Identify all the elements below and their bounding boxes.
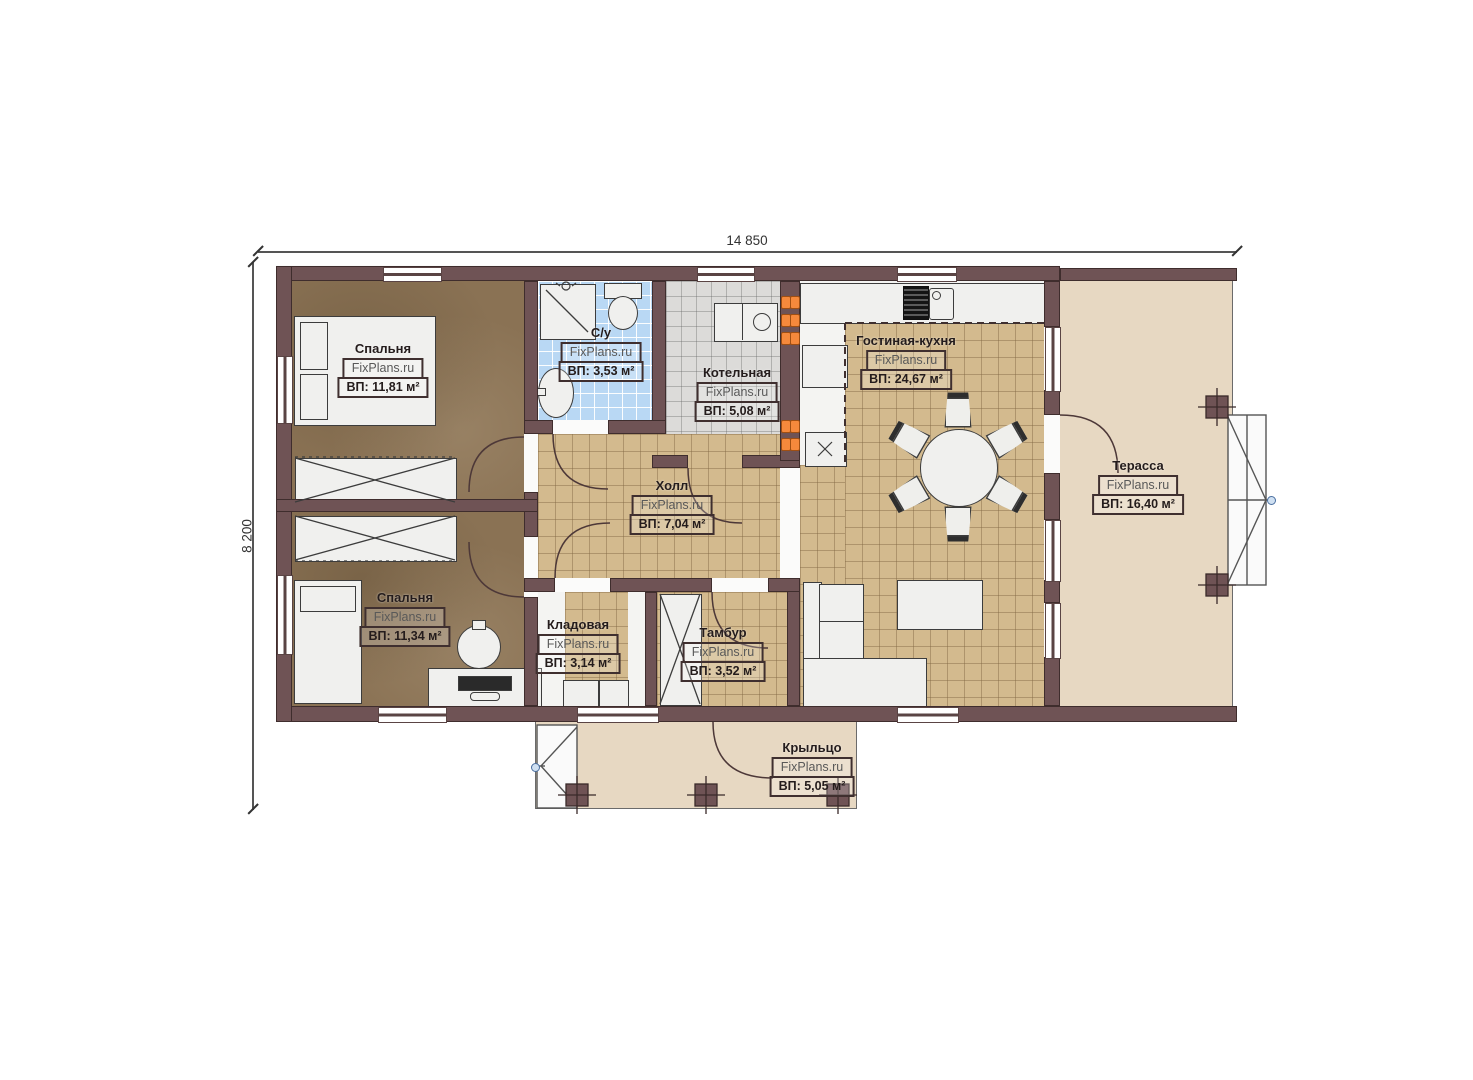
watermark: FixPlans.ru (538, 634, 619, 655)
window (378, 707, 447, 723)
reference-dot (531, 763, 540, 772)
wall-segment (1060, 268, 1237, 281)
window (1045, 520, 1061, 582)
room-area: ВП: 11,34 м² (359, 626, 450, 647)
desk-keyboard (470, 692, 500, 701)
window (277, 356, 293, 424)
dining-table (920, 429, 998, 507)
window (897, 707, 959, 723)
watermark: FixPlans.ru (632, 495, 713, 516)
wall-segment (524, 420, 553, 434)
room-name: Спальня (377, 590, 433, 605)
room-name: Тамбур (699, 625, 746, 640)
window (1045, 327, 1061, 392)
outlet-symbol (790, 314, 800, 327)
dimension-height-label: 8 200 (240, 519, 255, 553)
room-label-terrace: Терасса FixPlans.ru ВП: 16,40 м² (1092, 458, 1184, 515)
fridge (903, 286, 929, 320)
outlet-symbol (790, 438, 800, 451)
room-area: ВП: 3,52 м² (681, 661, 766, 682)
dining-chair (945, 507, 972, 542)
wall-segment (610, 578, 712, 592)
room-name: Терасса (1112, 458, 1164, 473)
room-area: ВП: 7,04 м² (630, 514, 715, 535)
window (897, 267, 957, 282)
dishwasher-cabinet (805, 432, 847, 467)
room-label-storage: Кладовая FixPlans.ru ВП: 3,14 м² (536, 617, 621, 674)
window (277, 575, 293, 655)
dimension-width-label: 14 850 (726, 233, 767, 248)
wall-segment (1044, 390, 1060, 415)
window (577, 707, 659, 723)
pillow (300, 586, 356, 612)
room-label-bedroom2: Спальня FixPlans.ru ВП: 11,34 м² (359, 590, 450, 647)
room-label-porch: Крыльцо FixPlans.ru ВП: 5,05 м² (770, 740, 855, 797)
wall-segment (524, 578, 555, 592)
watermark: FixPlans.ru (1098, 475, 1179, 496)
wall-segment (768, 578, 800, 592)
room-name: Холл (656, 478, 689, 493)
outlet-symbol (790, 296, 800, 309)
room-label-tambour: Тамбур FixPlans.ru ВП: 3,52 м² (681, 625, 766, 682)
stove (802, 345, 848, 388)
watermark: FixPlans.ru (772, 757, 853, 778)
desk-monitor (458, 676, 512, 691)
wall-segment (524, 281, 538, 432)
wall-segment (1044, 657, 1060, 706)
room-area: ВП: 3,14 м² (536, 653, 621, 674)
terrace-stairs (1228, 415, 1266, 585)
sink-drain (932, 291, 941, 300)
watermark: FixPlans.ru (683, 642, 764, 663)
outlet-symbol (790, 420, 800, 433)
window (697, 267, 755, 282)
room-name: С/у (591, 325, 611, 340)
sofa-cushion (819, 584, 864, 623)
wall-segment (787, 578, 800, 706)
sofa-chaise (803, 658, 927, 707)
wall-segment (1044, 473, 1060, 520)
room-label-bedroom1: Спальня FixPlans.ru ВП: 11,81 м² (337, 341, 428, 398)
floor-plan-canvas: 14 850 8 200 (0, 0, 1473, 1080)
room-area: ВП: 5,08 м² (695, 401, 780, 422)
reference-dot (1267, 496, 1276, 505)
sofa-cushion (819, 621, 864, 661)
wardrobe (295, 516, 457, 562)
watermark: FixPlans.ru (561, 342, 642, 363)
watermark: FixPlans.ru (866, 350, 947, 371)
window (1045, 603, 1061, 659)
room-label-bathroom: С/у FixPlans.ru ВП: 3,53 м² (559, 325, 644, 382)
pot-handle (472, 620, 486, 630)
wall-segment (645, 592, 657, 706)
pot-stand (457, 625, 501, 669)
room-name: Крыльцо (782, 740, 841, 755)
outlet-symbol (790, 332, 800, 345)
pillow (300, 374, 328, 420)
room-label-boiler: Котельная FixPlans.ru ВП: 5,08 м² (695, 365, 780, 422)
room-area: ВП: 24,67 м² (860, 369, 952, 390)
room-name: Спальня (355, 341, 411, 356)
dimension-line-top (258, 251, 1237, 253)
wardrobe (295, 458, 457, 504)
wall-segment (652, 455, 688, 468)
window (383, 267, 442, 282)
room-area: ВП: 5,05 м² (770, 776, 855, 797)
wall-segment (1044, 281, 1060, 327)
boiler-dial (753, 313, 771, 331)
storage-shelf (599, 680, 629, 707)
watermark: FixPlans.ru (343, 358, 424, 379)
storage-shelf (563, 680, 599, 707)
boiler-divider (742, 303, 743, 340)
room-name: Гостиная-кухня (856, 333, 956, 348)
wall-segment (608, 420, 666, 434)
coffee-table (897, 580, 983, 630)
room-area: ВП: 16,40 м² (1092, 494, 1184, 515)
wall-segment (1044, 580, 1060, 603)
watermark: FixPlans.ru (365, 607, 446, 628)
room-name: Кладовая (547, 617, 609, 632)
dining-chair (945, 393, 972, 428)
room-area: ВП: 3,53 м² (559, 361, 644, 382)
room-area: ВП: 11,81 м² (337, 377, 428, 398)
room-label-hall: Холл FixPlans.ru ВП: 7,04 м² (630, 478, 715, 535)
watermark: FixPlans.ru (697, 382, 778, 403)
wall-segment (652, 281, 666, 434)
wall-segment (276, 499, 538, 512)
pillow (300, 322, 328, 370)
room-name: Котельная (703, 365, 771, 380)
room-label-living: Гостиная-кухня FixPlans.ru ВП: 24,67 м² (856, 333, 956, 390)
